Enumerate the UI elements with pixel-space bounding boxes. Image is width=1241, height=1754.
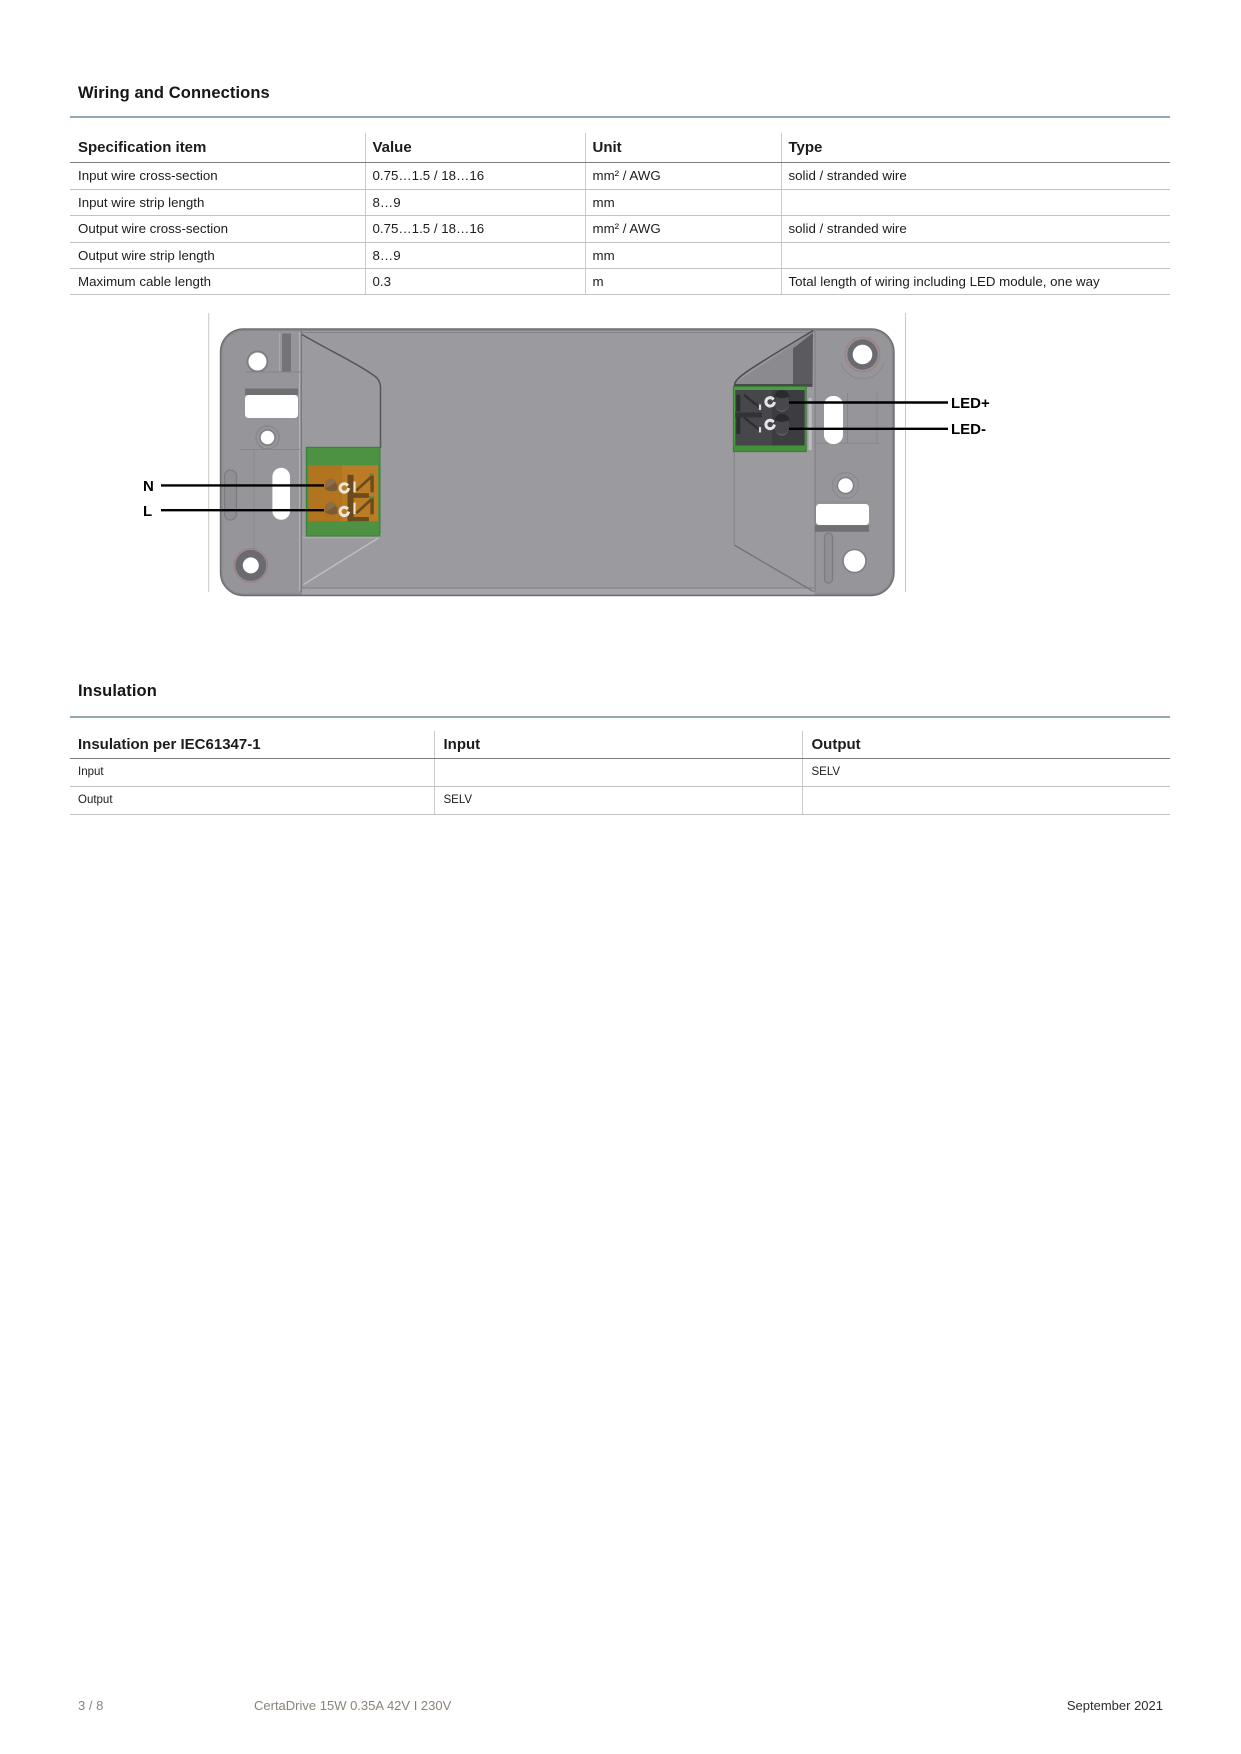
svg-text:LED-: LED-	[951, 421, 986, 438]
svg-text:LED+: LED+	[951, 395, 990, 412]
svg-text:N: N	[143, 478, 154, 495]
svg-text:L: L	[143, 503, 152, 520]
